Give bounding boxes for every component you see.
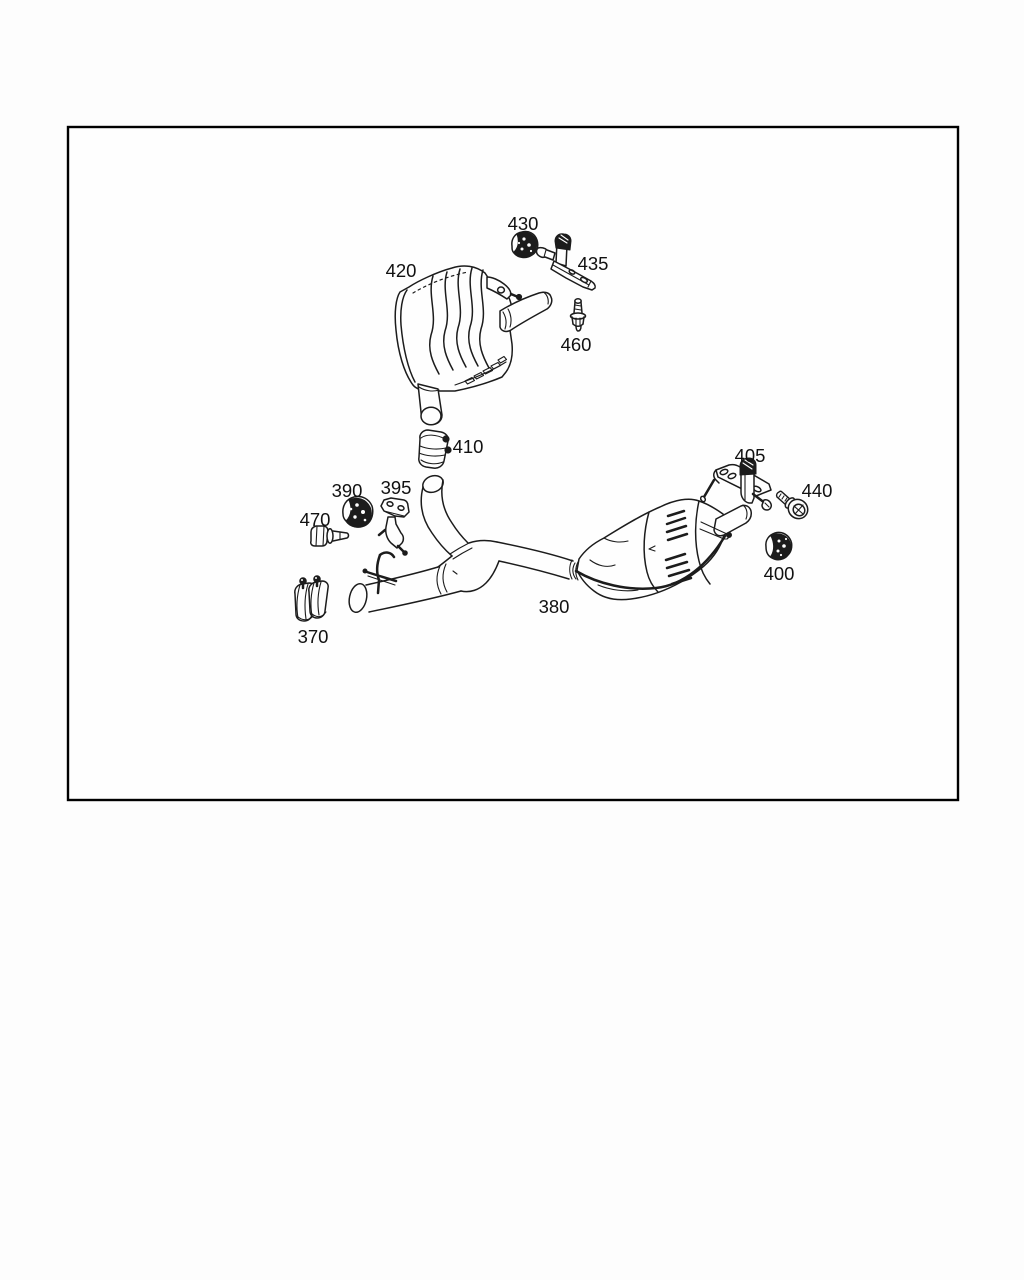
part-label-435: 435 [578,253,609,274]
part-label-370: 370 [298,626,329,647]
part-label-440: 440 [802,480,833,501]
part-label-405: 405 [735,445,766,466]
part-label-390: 390 [332,480,363,501]
part-label-395: 395 [381,477,412,498]
parts-diagram-canvas: 420 430 435 460 410 405 440 390 395 470 … [0,0,1024,1280]
part-label-420: 420 [386,260,417,281]
rubber-mount-430-drawing [512,231,538,257]
part-label-410: 410 [453,436,484,457]
rubber-mount-400-drawing [766,532,792,559]
part-label-400: 400 [764,563,795,584]
part-label-460: 460 [561,334,592,355]
part-label-380: 380 [539,596,570,617]
part-label-430: 430 [508,213,539,234]
rubber-mount-390-drawing [343,496,373,527]
part-label-470: 470 [300,509,331,530]
